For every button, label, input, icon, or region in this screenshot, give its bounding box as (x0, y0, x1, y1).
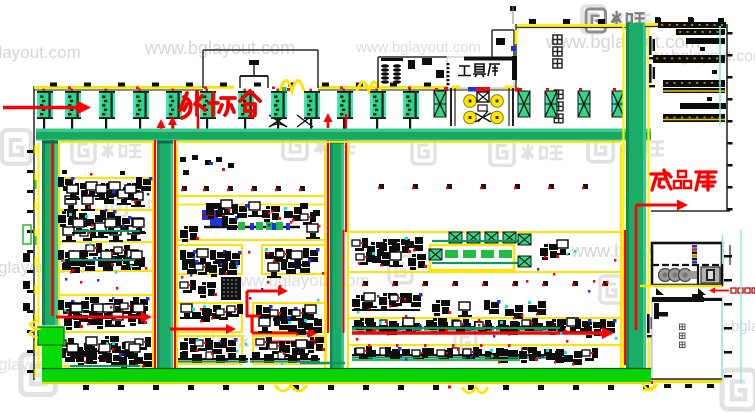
svg-text:www.bglayout.com: www.bglayout.com (0, 43, 81, 62)
svg-text:www.bglayout.com: www.bglayout.com (144, 38, 295, 58)
svg-text:LG WANG: LG WANG (104, 368, 176, 385)
svg-text:www.bglayout.com: www.bglayout.com (355, 39, 481, 56)
